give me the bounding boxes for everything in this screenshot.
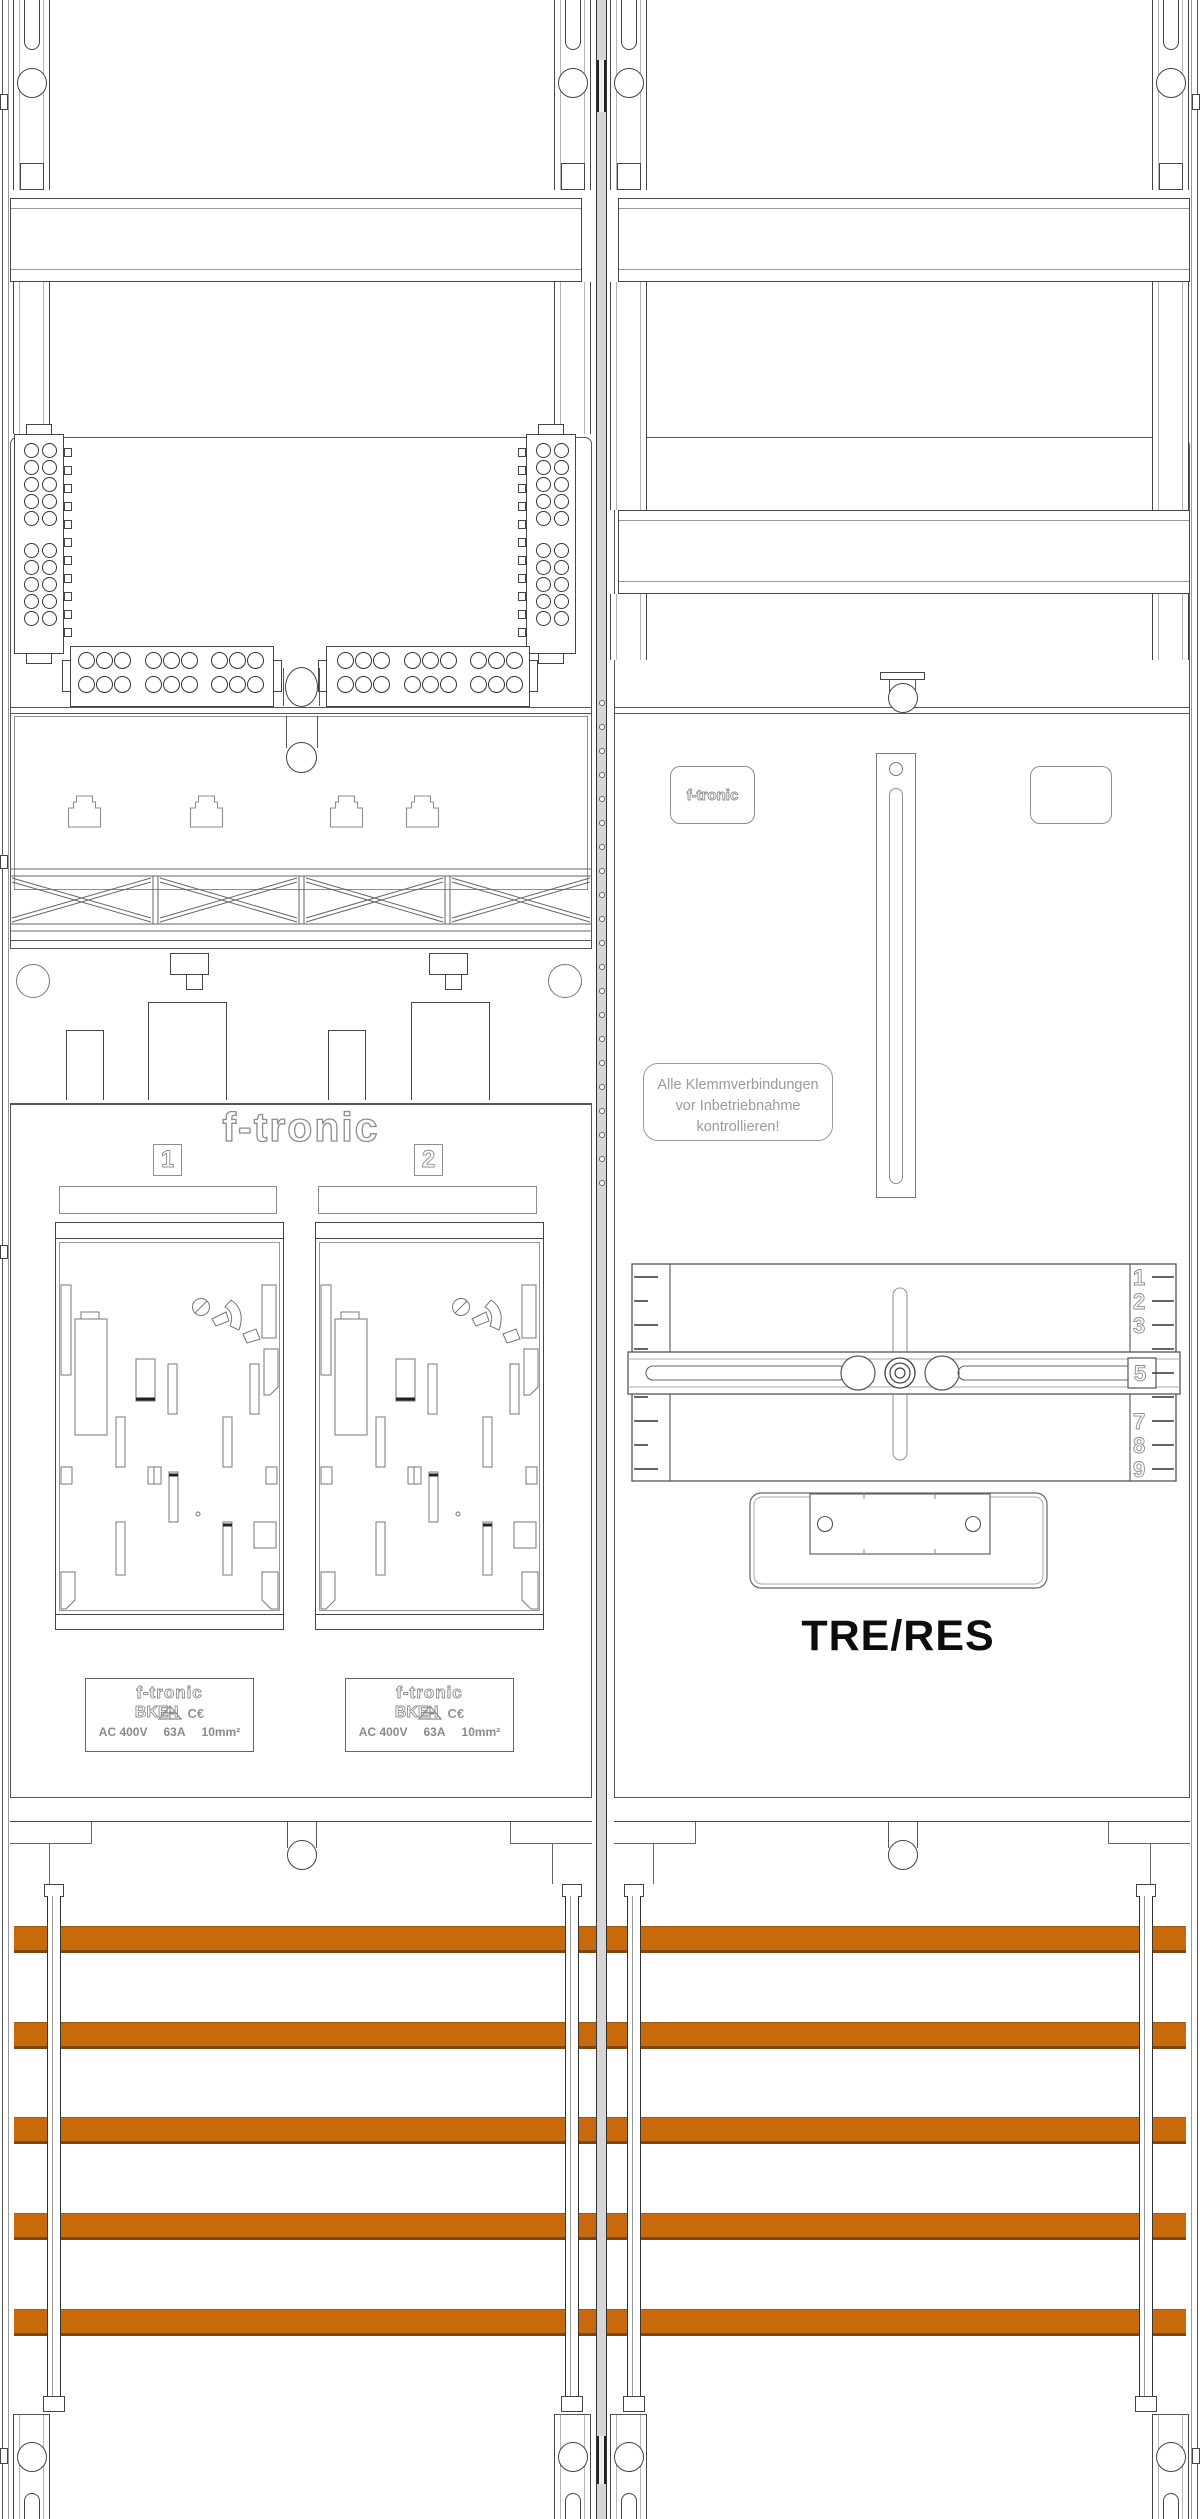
busbar-tooth <box>518 538 526 547</box>
notch-wall <box>888 1822 889 1848</box>
cable-entry-notch <box>286 742 317 773</box>
retaining-clip <box>186 974 203 990</box>
slider-bar: 5 <box>628 1352 1180 1394</box>
bottom-notch <box>287 1840 317 1870</box>
busbar-tooth <box>64 574 72 583</box>
terminal-hole <box>536 611 551 626</box>
busbar-tooth <box>64 448 72 457</box>
terminal-hole <box>554 594 569 609</box>
corner-step <box>10 1822 92 1844</box>
terminal-hole <box>42 511 57 526</box>
rating-plate-1: f-tronic BKE-I C€ AC 400V 63A 10mm² <box>85 1678 254 1752</box>
rail-slot <box>24 0 40 50</box>
divider-chain-hole <box>599 700 605 706</box>
terminal-hole <box>554 443 569 458</box>
cable-grommet <box>285 667 318 707</box>
right-edge-line <box>1197 0 1198 2519</box>
rail-hole <box>558 68 588 98</box>
edge-clip <box>1192 2448 1200 2464</box>
mounting-rail-bottom <box>554 2414 591 2519</box>
rail-inner-line <box>632 1896 633 2397</box>
terminal-hole <box>404 652 421 669</box>
meter-number-1: 1 <box>161 1146 174 1173</box>
meter-number-box-2: 2 <box>414 1144 443 1176</box>
busbar-tooth <box>64 520 72 529</box>
mounting-rail-top <box>554 0 591 190</box>
plate-brand: f-tronic <box>346 1683 513 1703</box>
plate-spec: AC 400V <box>99 1725 148 1739</box>
notice-sticker: Alle Klemmverbindungen vor Inbetriebnahm… <box>643 1063 833 1141</box>
terminal-hole <box>488 652 505 669</box>
retaining-clip <box>429 953 468 975</box>
terminal-strip-tab <box>529 660 538 692</box>
ce-mark: C€ <box>447 1706 464 1721</box>
ruler-number: 8 <box>1133 1433 1145 1458</box>
rail-hole <box>1156 2442 1186 2472</box>
divider-chain-hole <box>599 868 605 874</box>
rail-step <box>617 163 641 190</box>
meter-panel-2 <box>315 1222 544 1630</box>
terminal-block-vertical <box>526 434 576 654</box>
tray-edge <box>10 707 592 708</box>
terminal-hole <box>554 611 569 626</box>
edge-clip <box>0 1245 8 1259</box>
ruler-number: 7 <box>1133 1409 1145 1434</box>
rail-hole <box>17 68 47 98</box>
terminal-hole <box>24 494 39 509</box>
mounting-rail-bottom <box>610 2414 647 2519</box>
divider-chain-hole <box>599 1108 605 1114</box>
terminal-hole <box>229 652 246 669</box>
terminal-hole <box>337 652 354 669</box>
terminal-strip-tab <box>273 660 282 692</box>
ruler-number: 1 <box>1133 1265 1145 1290</box>
divider-chain-hole <box>599 772 605 778</box>
terminal-hole <box>355 676 372 693</box>
meter-number-2: 2 <box>422 1146 435 1173</box>
label-window <box>318 1186 537 1214</box>
busbar-tooth <box>64 628 72 637</box>
terminal-hole <box>355 652 372 669</box>
terminal-hole <box>96 652 113 669</box>
terminal-hole <box>536 511 551 526</box>
rail-inner-line <box>52 1896 53 2397</box>
ruler-number-selected: 5 <box>1134 1361 1146 1386</box>
bottom-notch <box>888 1840 918 1870</box>
notice-line: vor Inbetriebnahme <box>644 1096 832 1117</box>
rail-hole <box>1156 68 1186 98</box>
rail-slot <box>565 0 581 50</box>
terminal-hole <box>24 560 39 575</box>
rail-hole <box>17 2442 47 2472</box>
rail-slot <box>24 2493 40 2519</box>
meter-panel-1 <box>55 1222 284 1630</box>
terminal-hole <box>554 543 569 558</box>
plate-spec: 63A <box>424 1725 446 1739</box>
terminal-block-cap <box>538 653 564 664</box>
mounting-rail-top <box>13 0 50 190</box>
terminal-hole <box>247 652 264 669</box>
terminal-hole <box>536 560 551 575</box>
meter-cross-plate: 1 2 3 7 8 9 5 <box>628 1262 1180 1484</box>
notch-wall <box>287 1822 288 1848</box>
terminal-hole <box>229 676 246 693</box>
busbar-tooth <box>518 502 526 511</box>
corner-step <box>10 1844 50 1884</box>
notch-wall <box>316 1822 317 1848</box>
divider-chain-hole <box>599 964 605 970</box>
edge-clip <box>0 2448 8 2464</box>
mounting-rail-bottom <box>13 2414 50 2519</box>
busbar-rail-foot <box>1135 2396 1157 2412</box>
divider-chain-hole <box>599 1084 605 1090</box>
busbar-rail-foot <box>561 2396 583 2412</box>
terminal-hole <box>536 543 551 558</box>
busbar-tooth <box>64 538 72 547</box>
notice-line: kontrollieren! <box>644 1117 832 1138</box>
busbar-tooth <box>64 466 72 475</box>
divider-chain-hole <box>599 1012 605 1018</box>
terminal-hole <box>181 652 198 669</box>
busbar-tooth <box>64 610 72 619</box>
terminal-hole <box>42 477 57 492</box>
terminal-hole <box>114 676 131 693</box>
socket-cutouts <box>68 793 440 828</box>
strip-hole <box>889 762 903 776</box>
terminal-hole <box>440 676 457 693</box>
label-window <box>59 1186 277 1214</box>
terminal-hole <box>24 443 39 458</box>
terminal-hole <box>181 676 198 693</box>
corner-hole <box>548 964 582 998</box>
rail-step <box>20 163 44 190</box>
terminal-hole <box>42 594 57 609</box>
right-field-bottom-band <box>614 1798 1190 1822</box>
busbar-tooth <box>64 484 72 493</box>
din-rail-top-right <box>618 198 1190 282</box>
tray-edge <box>10 713 592 714</box>
busbar-rail <box>627 1896 641 2397</box>
terminal-hole <box>470 676 487 693</box>
field-divider <box>596 0 607 2519</box>
rail-step <box>561 163 585 190</box>
meter-cabinet-drawing: f-tronic 1 2 <box>0 0 1200 2519</box>
terminal-hole <box>536 443 551 458</box>
busbar-rail-foot <box>43 2396 65 2412</box>
busbar-tooth <box>518 592 526 601</box>
rail-slot <box>1163 0 1179 50</box>
busbar-rail <box>1139 1896 1153 2397</box>
terminal-hole <box>24 543 39 558</box>
divider-chain-hole <box>599 796 605 802</box>
busbar-tooth <box>518 484 526 493</box>
busbar-tooth <box>64 592 72 601</box>
corner-step <box>614 1822 696 1844</box>
terminal-hole <box>42 443 57 458</box>
t-bracket <box>880 672 925 680</box>
device-label: TRE/RES <box>748 1612 1048 1662</box>
notch-wall <box>917 1822 918 1848</box>
terminal-hole <box>506 652 523 669</box>
corner-step <box>1150 1844 1190 1884</box>
divider-chain-hole <box>599 1156 605 1162</box>
logo-plate-right: f-tronic <box>670 766 755 824</box>
terminal-hole <box>506 676 523 693</box>
terminal-hole <box>554 477 569 492</box>
terminal-stub-large <box>411 1002 490 1100</box>
rating-plate-2: f-tronic BKE-I C€ AC 400V 63A 10mm² <box>345 1678 514 1752</box>
divider-chain-hole <box>599 1036 605 1042</box>
rail-step <box>1159 163 1183 190</box>
busbar-tooth <box>518 574 526 583</box>
notch-wall <box>286 716 287 748</box>
rail-stub <box>1152 594 1189 660</box>
left-field-bottom-band <box>10 1798 592 1822</box>
terminal-hole <box>536 494 551 509</box>
right-edge-inner-line <box>1191 0 1192 2519</box>
cable-grommet <box>888 683 918 713</box>
terminal-hole <box>145 676 162 693</box>
din-rail-top-left <box>10 198 582 282</box>
terminal-hole <box>24 460 39 475</box>
plate-spec: AC 400V <box>359 1725 408 1739</box>
rail-stub <box>610 594 647 660</box>
terminal-hole <box>470 652 487 669</box>
terminal-hole <box>422 676 439 693</box>
terminal-stub-large <box>148 1002 227 1100</box>
rail-slot <box>621 0 637 50</box>
rail-hole <box>614 68 644 98</box>
divider-chain-hole <box>599 892 605 898</box>
corner-step <box>614 1844 654 1884</box>
tray-edge <box>614 713 1190 714</box>
terminal-hole <box>163 676 180 693</box>
terminal-stub <box>66 1030 104 1100</box>
terminal-hole <box>42 494 57 509</box>
busbar-tooth <box>518 520 526 529</box>
corner-step <box>552 1844 592 1884</box>
terminal-hole <box>554 494 569 509</box>
vde-triangle-icon <box>418 1705 442 1721</box>
terminal-hole <box>163 652 180 669</box>
left-edge-inner-line <box>8 0 9 2519</box>
rail-slot <box>621 2493 637 2519</box>
terminal-hole <box>24 511 39 526</box>
brand-logo-right: f-tronic <box>687 787 739 804</box>
ce-mark: C€ <box>187 1706 204 1721</box>
terminal-hole <box>554 460 569 475</box>
busbar-tooth <box>518 448 526 457</box>
mounting-rail-top <box>1152 0 1189 190</box>
edge-clip <box>0 855 8 869</box>
terminal-hole <box>440 652 457 669</box>
mounting-rail-top <box>610 0 647 190</box>
lattice-truss <box>10 866 592 934</box>
divider-chain-hole <box>599 916 605 922</box>
rail-hole <box>558 2442 588 2472</box>
terminal-hole <box>114 652 131 669</box>
plate-spec: 10mm² <box>462 1725 501 1739</box>
divider-chain-hole <box>599 988 605 994</box>
terminal-stub <box>328 1030 366 1100</box>
busbar-tooth <box>518 628 526 637</box>
divider-chain-hole <box>599 940 605 946</box>
terminal-hole <box>536 577 551 592</box>
rail-stub <box>1152 282 1189 510</box>
terminal-hole <box>554 511 569 526</box>
rail-stub <box>13 282 50 434</box>
divider-chain-hole <box>599 844 605 850</box>
meter-panel-detail <box>59 1242 280 1611</box>
terminal-hole <box>247 676 264 693</box>
terminal-hole <box>337 676 354 693</box>
terminal-hole <box>78 676 95 693</box>
terminal-hole <box>211 652 228 669</box>
terminal-hole <box>78 652 95 669</box>
terminal-hole <box>536 477 551 492</box>
meter-panel-detail <box>319 1242 540 1611</box>
left-edge-line <box>2 0 3 2519</box>
divider-chain-hole <box>599 820 605 826</box>
terminal-hole <box>24 611 39 626</box>
corner-step <box>1108 1822 1190 1844</box>
retaining-clip <box>445 974 462 990</box>
terminal-hole <box>373 676 390 693</box>
retaining-clip <box>170 953 209 975</box>
rail-inner-line <box>570 1896 571 2397</box>
divider-chain-hole <box>599 724 605 730</box>
plate-spec: 10mm² <box>202 1725 241 1739</box>
terminal-hole <box>42 543 57 558</box>
terminal-hole <box>404 676 421 693</box>
notice-line: Alle Klemmverbindungen <box>644 1075 832 1096</box>
divider-clamp <box>597 60 606 112</box>
plate-spec: 63A <box>164 1725 186 1739</box>
busbar-rail <box>47 1896 61 2397</box>
busbar-tooth <box>518 610 526 619</box>
meter-number-box-1: 1 <box>153 1144 182 1176</box>
terminal-hole <box>24 477 39 492</box>
terminal-hole <box>42 611 57 626</box>
terminal-hole <box>42 577 57 592</box>
divider-chain-hole <box>599 1180 605 1186</box>
terminal-hole <box>42 560 57 575</box>
terminal-hole <box>536 594 551 609</box>
rail-slot <box>565 2493 581 2519</box>
rail-hole <box>614 2442 644 2472</box>
terminal-hole <box>42 460 57 475</box>
busbar-tooth <box>518 466 526 475</box>
terminal-hole <box>24 594 39 609</box>
terminal-block-cap <box>26 653 52 664</box>
corner-hole <box>16 964 50 998</box>
busbar-tooth <box>64 556 72 565</box>
grommet-recess <box>319 668 320 706</box>
ruler-number: 3 <box>1133 1313 1145 1338</box>
terminal-hole <box>373 652 390 669</box>
notch-wall <box>317 716 318 748</box>
terminal-hole <box>211 676 228 693</box>
mounting-bracket <box>749 1492 1049 1590</box>
mounting-rail-bottom <box>1152 2414 1189 2519</box>
terminal-block-vertical <box>14 434 64 654</box>
terminal-hole <box>536 460 551 475</box>
chassis-line <box>10 940 592 941</box>
divider-chain-hole <box>599 1132 605 1138</box>
divider-clamp <box>597 2436 606 2484</box>
divider-chain-hole <box>599 748 605 754</box>
terminal-hole <box>488 676 505 693</box>
rail-inner-line <box>1144 1896 1145 2397</box>
ruler-number: 9 <box>1133 1457 1145 1482</box>
terminal-hole <box>554 577 569 592</box>
edge-clip <box>0 94 8 110</box>
busbar-tooth <box>518 556 526 565</box>
din-rail-right-field <box>618 510 1190 594</box>
ruler-number: 2 <box>1133 1289 1145 1314</box>
busbar-tooth <box>64 502 72 511</box>
terminal-hole <box>554 560 569 575</box>
vde-triangle-icon <box>158 1705 182 1721</box>
blank-plate <box>1030 766 1112 824</box>
corner-step <box>510 1822 592 1844</box>
divider-chain-hole <box>599 1060 605 1066</box>
terminal-hole <box>145 652 162 669</box>
plate-brand: f-tronic <box>86 1683 253 1703</box>
rail-stub <box>554 282 591 434</box>
brand-logo-left: f-tronic <box>210 1104 392 1148</box>
strip-slot <box>889 788 903 1184</box>
edge-clip <box>1192 94 1200 110</box>
terminal-hole <box>24 577 39 592</box>
busbar-rail <box>565 1896 579 2397</box>
grommet-recess <box>283 668 284 706</box>
busbar-rail-foot <box>623 2396 645 2412</box>
rail-slot <box>1163 2493 1179 2519</box>
rail-stub <box>610 282 647 510</box>
terminal-hole <box>96 676 113 693</box>
terminal-hole <box>422 652 439 669</box>
